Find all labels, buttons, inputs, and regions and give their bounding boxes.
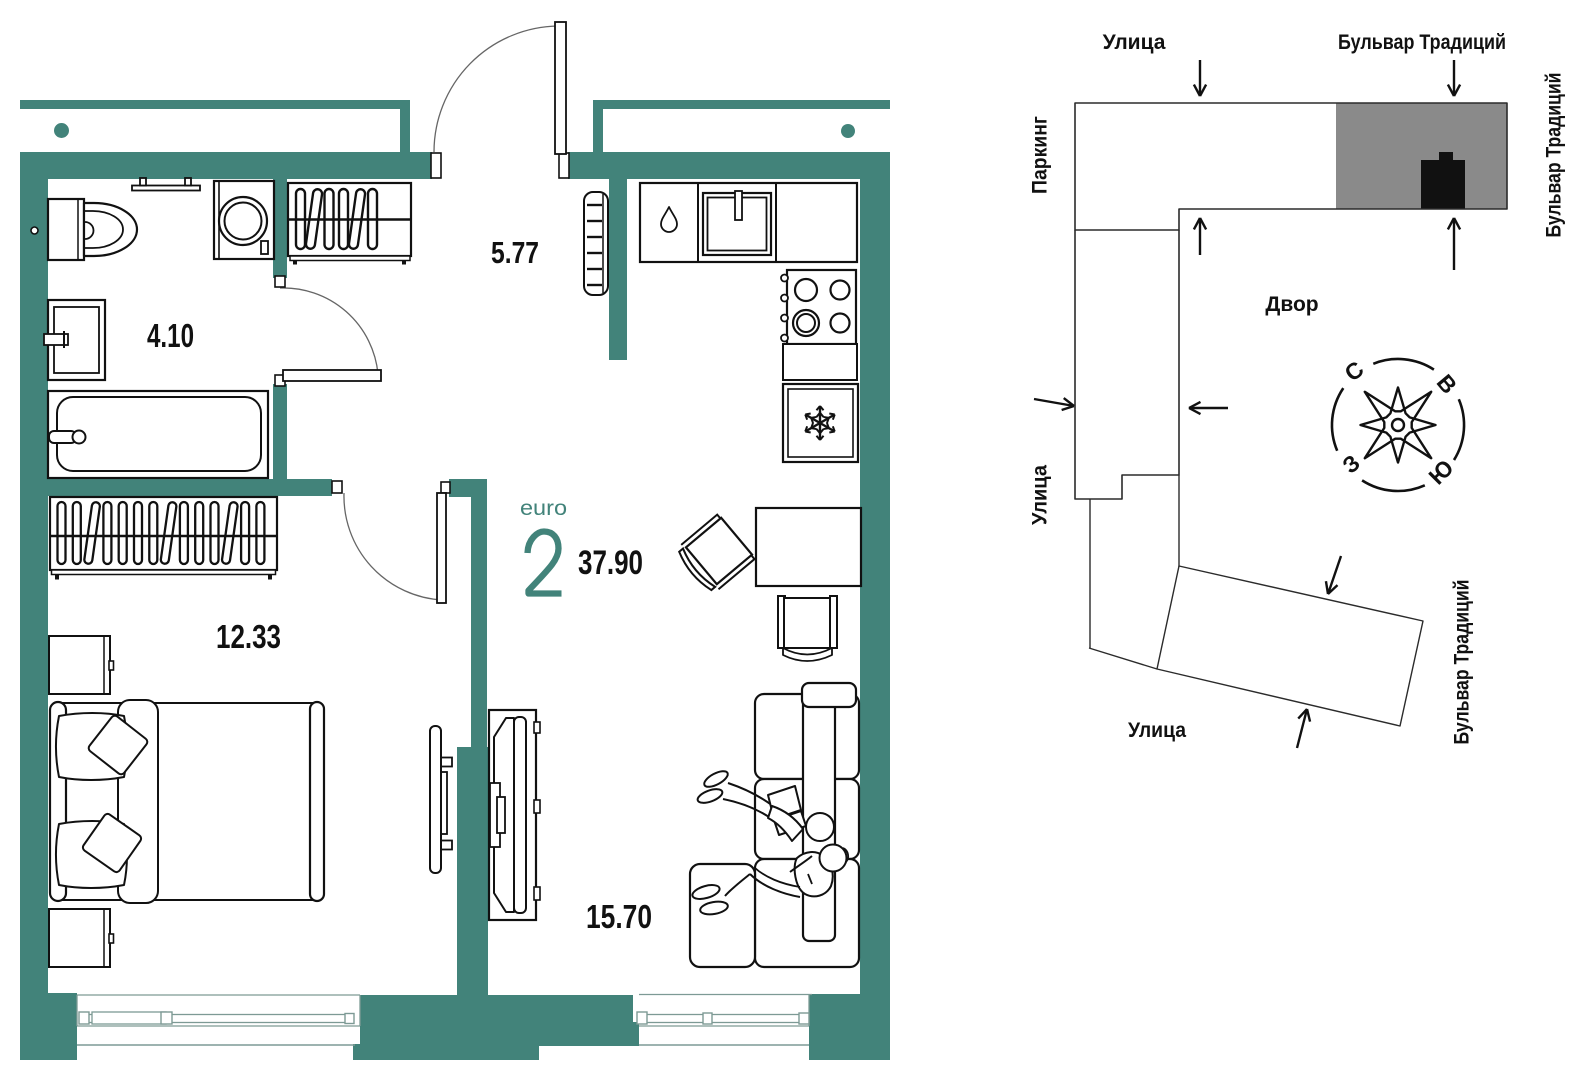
svg-text:Улица: Улица — [1029, 465, 1052, 525]
svg-text:Бульвар Традиций: Бульвар Традиций — [1338, 31, 1506, 54]
svg-text:Паркинг: Паркинг — [1029, 116, 1052, 194]
svg-text:15.70: 15.70 — [586, 898, 652, 935]
svg-text:Бульвар Традиций: Бульвар Традиций — [1543, 73, 1566, 238]
svg-text:4.10: 4.10 — [147, 317, 194, 354]
svg-text:В: В — [1432, 369, 1463, 398]
svg-text:З: З — [1337, 449, 1365, 478]
svg-text:Улица: Улица — [1128, 719, 1186, 742]
svg-text:euro: euro — [520, 497, 567, 520]
svg-text:37.90: 37.90 — [578, 544, 643, 582]
svg-text:Двор: Двор — [1265, 293, 1318, 316]
svg-text:Улица: Улица — [1103, 31, 1166, 54]
svg-text:5.77: 5.77 — [491, 235, 539, 270]
svg-text:12.33: 12.33 — [216, 618, 281, 655]
svg-text:Ю: Ю — [1423, 454, 1458, 489]
svg-text:Бульвар Традиций: Бульвар Традиций — [1451, 580, 1474, 745]
svg-text:С: С — [1339, 356, 1368, 387]
